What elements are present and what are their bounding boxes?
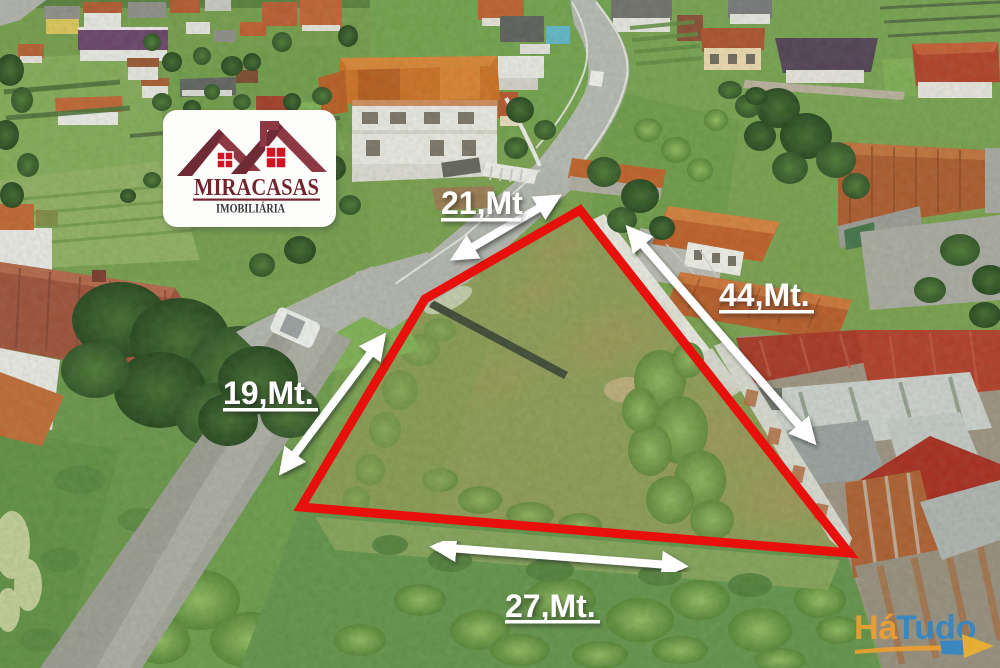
svg-text:44,Mt.: 44,Mt. [719, 277, 810, 313]
svg-text:21,Mt: 21,Mt [441, 185, 523, 221]
svg-text:Há: Há [854, 609, 898, 647]
svg-text:27,Mt.: 27,Mt. [505, 588, 596, 624]
svg-text:19,Mt.: 19,Mt. [223, 375, 314, 411]
svg-text:IMOBILIÁRIA: IMOBILIÁRIA [216, 201, 285, 216]
svg-text:MIRACASAS: MIRACASAS [194, 175, 319, 201]
